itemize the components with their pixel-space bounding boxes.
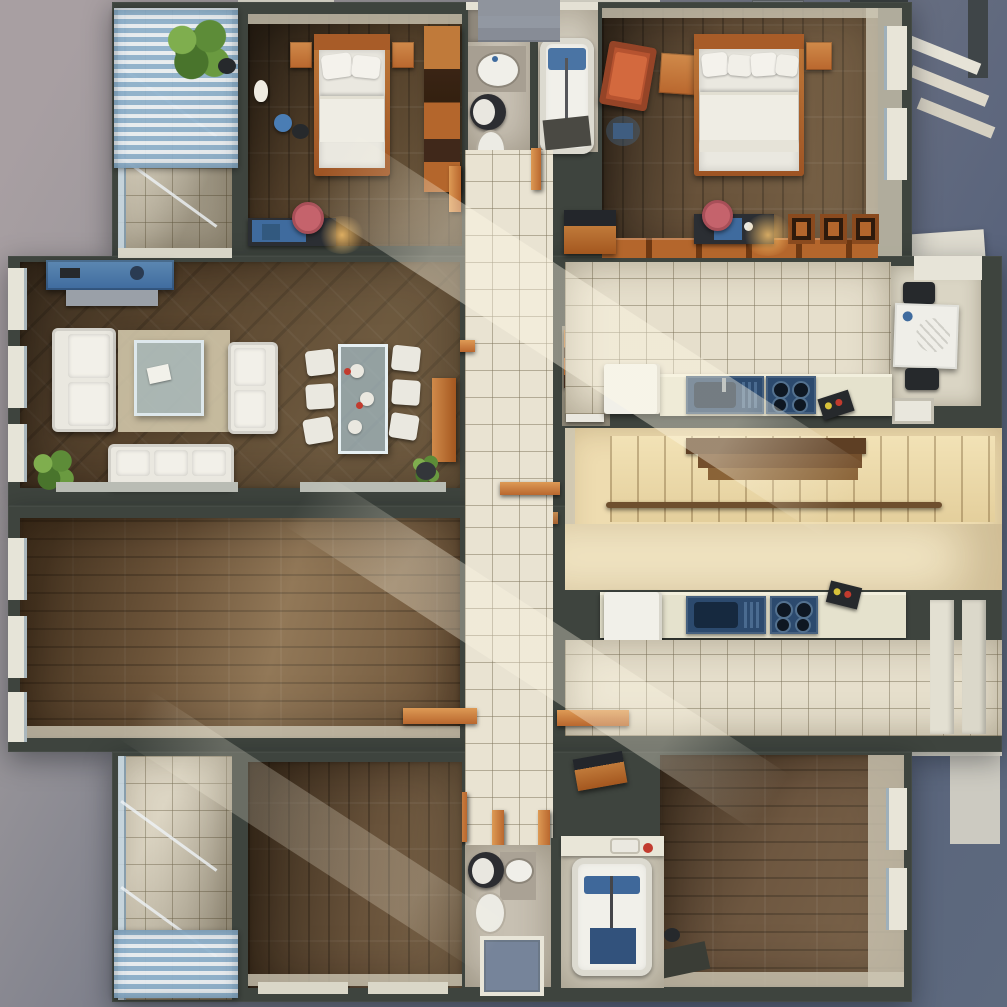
nightstand — [806, 42, 832, 70]
bedroom-double-wall-face — [602, 8, 878, 18]
orange-sideboard — [432, 378, 456, 462]
door-bath-lower-2 — [538, 810, 550, 848]
burner — [772, 397, 788, 413]
bed-fold — [700, 140, 798, 152]
toilet-lid — [473, 99, 495, 125]
kitchen-stove — [766, 376, 816, 414]
chair-seat — [608, 52, 647, 101]
bed-pillow — [775, 54, 799, 78]
desk-item — [744, 222, 753, 231]
nook-lower-panel — [962, 600, 986, 734]
drainboard — [744, 602, 760, 628]
window-sill — [8, 346, 27, 408]
tray-item — [834, 398, 843, 407]
bedroom-bottom-left-floor — [248, 762, 462, 988]
open-shelf — [852, 214, 879, 244]
pink-chair — [292, 202, 324, 234]
window-sill — [8, 616, 27, 678]
sofa-cushion — [154, 450, 188, 476]
blue-stool — [274, 114, 292, 132]
door-bedroom-bottom-right — [557, 710, 629, 726]
planter-pot — [218, 58, 236, 74]
exterior-stair-step — [917, 97, 996, 138]
window-sill — [368, 982, 448, 994]
bath-sink — [476, 52, 520, 88]
red-soap — [643, 843, 653, 853]
exterior-path — [950, 756, 1000, 844]
exterior-stair-step — [901, 33, 982, 75]
half-wall-sill — [300, 482, 446, 492]
table-sketch — [915, 318, 950, 353]
entry-porch — [478, 0, 560, 42]
double-bed — [694, 34, 804, 176]
small-pot — [664, 928, 680, 942]
desk-blue-box — [262, 224, 280, 240]
sofa-cushion — [234, 390, 266, 428]
sofa-cushion — [68, 382, 110, 426]
window-sill — [886, 788, 907, 850]
half-wall-sill — [56, 482, 238, 492]
sofa-cushion — [116, 450, 150, 476]
hall-cabinet — [564, 210, 616, 254]
sink-faucet — [722, 378, 726, 392]
stair-dark-step — [698, 454, 862, 468]
sink-basin — [694, 382, 736, 408]
table-plate — [903, 311, 913, 321]
tray-item — [833, 587, 841, 595]
stair-dark-step — [686, 438, 866, 454]
hallway-lower-floor — [465, 506, 553, 852]
vase — [254, 80, 268, 102]
door-bedroom-bottom-left — [403, 708, 477, 724]
bed-pillow — [727, 54, 753, 77]
open-shelf — [820, 214, 847, 244]
tv-item — [130, 266, 144, 280]
blue-floor-lamp — [606, 116, 640, 146]
sofa-cushion — [234, 348, 266, 386]
plant-pot — [416, 462, 436, 480]
kitchen-lower-sink — [686, 596, 766, 634]
dining-chair — [391, 345, 421, 373]
tray-item — [844, 590, 852, 598]
bedroom-single-wall-face — [248, 14, 462, 24]
bath-sink2-lower — [610, 838, 640, 854]
bed-pillow — [701, 52, 730, 78]
fridge — [604, 364, 660, 414]
tv-item — [60, 268, 80, 278]
door-lower-unit — [500, 482, 560, 495]
kitchen-sink — [686, 376, 764, 414]
navy-mat — [590, 928, 636, 964]
window-sill — [8, 268, 27, 330]
dining-chair — [391, 379, 421, 406]
window-sill — [8, 538, 27, 600]
window-sill — [884, 108, 907, 180]
plate-red-item — [344, 368, 351, 375]
glass-coffee-table — [134, 340, 204, 416]
burner — [792, 397, 808, 413]
breakfast-table — [893, 303, 959, 369]
nook-shelf — [914, 256, 982, 280]
living-lower-south-face — [20, 726, 460, 738]
window-sill — [8, 692, 27, 742]
window-sill — [886, 868, 907, 930]
nightstand-right — [392, 42, 414, 68]
door-bath-lower — [492, 810, 504, 850]
lamp-base — [613, 123, 633, 139]
window-sill — [884, 26, 907, 90]
single-bed — [314, 34, 390, 176]
stair-dark-step — [708, 468, 858, 480]
tub-faucet — [565, 58, 568, 120]
fridge-lower — [604, 592, 662, 646]
dark-pot — [292, 124, 309, 139]
door-bathroom — [531, 148, 541, 190]
burner — [795, 617, 811, 633]
balcony-bl-awning — [114, 930, 238, 998]
dining-chair — [302, 416, 334, 445]
sink-basin — [694, 602, 738, 628]
loveseat — [228, 342, 278, 434]
bed-duvet — [700, 92, 798, 144]
plate — [348, 420, 362, 434]
kitchen-lower-stove — [770, 596, 818, 634]
door-bedroom-single — [449, 166, 461, 212]
dining-chair — [388, 412, 420, 441]
plate-red-item — [356, 402, 363, 409]
bedroom-br-south-face — [660, 972, 904, 987]
palm-plant — [150, 14, 242, 88]
tub-faucet-lower — [610, 876, 613, 930]
sink-tap — [492, 56, 498, 62]
toilet-lid-lower — [472, 858, 494, 884]
tv-shelf — [66, 290, 158, 306]
nook-lower-panel — [930, 600, 954, 734]
floorplan-render — [0, 0, 1007, 1007]
bed-headboard — [314, 34, 390, 50]
bed-headboard — [694, 34, 804, 49]
nook-chair — [905, 368, 939, 390]
sofa-cushion — [68, 334, 110, 378]
dark-floor-mat — [543, 116, 592, 151]
bed-pillow — [750, 52, 778, 77]
dining-chair — [305, 348, 336, 376]
nook-chair — [903, 282, 935, 304]
tray-item — [824, 401, 833, 410]
toilet-bowl-lower — [474, 892, 506, 934]
table-books — [147, 364, 172, 384]
open-shelf — [788, 214, 815, 244]
side-table — [659, 53, 698, 95]
blue-tv-sideboard — [46, 260, 174, 290]
sofa-cushion — [192, 450, 226, 476]
exterior-stair-step — [909, 65, 990, 107]
living-room-lower-floor — [20, 518, 460, 738]
drainboard — [742, 382, 758, 408]
bed-blanket — [320, 96, 384, 142]
bed-pillow — [320, 52, 353, 80]
plate — [350, 364, 364, 378]
wall-sink — [892, 398, 934, 424]
stair-landing — [565, 524, 1002, 590]
window-sill — [258, 982, 348, 994]
stair-handrail — [606, 502, 942, 508]
hallway-floor — [465, 150, 553, 506]
neighbor-wall-strip — [968, 0, 988, 78]
pink-chair — [702, 200, 733, 231]
bath-sink-lower — [504, 858, 534, 884]
nightstand-left — [290, 42, 312, 68]
bath-divider-wall-lower — [551, 838, 561, 988]
burner — [775, 617, 791, 633]
bath-window-lower — [480, 936, 544, 996]
dining-chair — [305, 383, 335, 410]
sofa-left — [52, 328, 116, 432]
bed-pillow — [351, 55, 381, 80]
